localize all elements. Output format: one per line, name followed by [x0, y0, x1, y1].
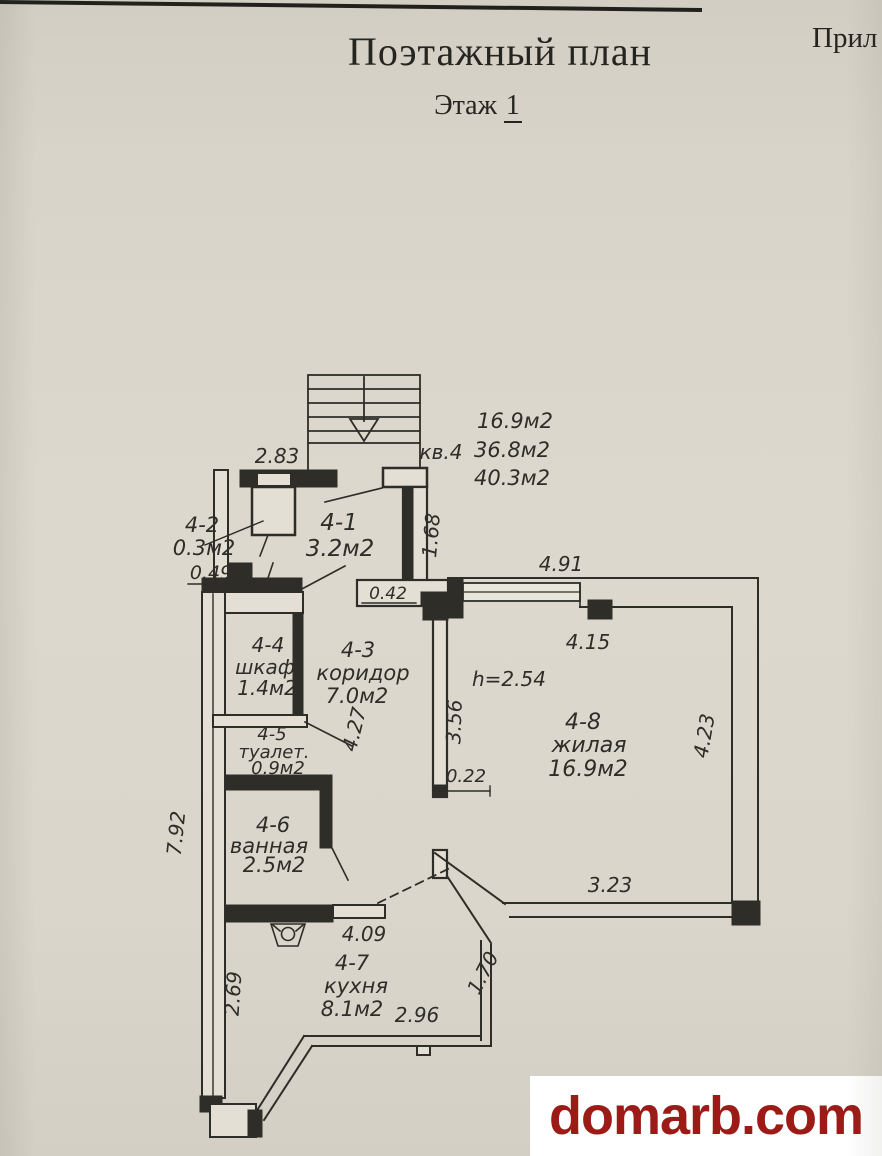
room-4-3-name: коридор [316, 661, 409, 685]
room-4-4-area: 1.4м2 [237, 676, 297, 700]
room-4-5-area: 0.9м2 [251, 758, 305, 779]
room-4-3-area: 7.0м2 [326, 684, 389, 708]
top-edge-line [0, 2, 700, 10]
dim-left-side: 7.92 [162, 810, 191, 857]
room-4-2-id: 4-2 [185, 513, 219, 537]
sink-icon [271, 924, 305, 946]
floor-plan-drawing: 2.83 кв.4 16.9м2 36.8м2 40.3м2 4-1 3.2м2… [0, 0, 882, 1156]
room-4-4-id: 4-4 [252, 633, 285, 657]
dim-corridor-right: 3.56 [441, 699, 467, 744]
entry-door-leaf [325, 488, 382, 502]
room-4-7-name: кухня [324, 974, 388, 998]
built-in-closet [252, 487, 295, 535]
dim-pier: 0.42 [369, 584, 407, 604]
area-summary-total-living: 36.8м2 [474, 438, 550, 462]
dim-kitchen-bottom: 2.96 [395, 1003, 440, 1027]
dim-hall-depth: 1.68 [417, 512, 445, 558]
watermark-text: domarb.com [549, 1085, 863, 1147]
apartment-label: кв.4 [420, 440, 463, 464]
room-4-8-area: 16.9м2 [548, 757, 628, 782]
room-4-7-area: 8.1м2 [321, 997, 384, 1021]
walls-corridor [378, 607, 490, 903]
room-4-8-name: жилая [551, 733, 627, 758]
hall-door-leaf [300, 566, 345, 590]
dim-kitchen-left: 2.69 [219, 970, 246, 1016]
room-4-8-id: 4-8 [565, 710, 601, 735]
walls-bottom-left [200, 1096, 262, 1137]
dim-closet-width: 0.49 [190, 562, 232, 584]
bath-door-leaf [332, 848, 348, 880]
closet-door-leaf [260, 535, 268, 556]
stairs-arrow-icon [350, 419, 378, 441]
dim-living-bottom: 3.23 [588, 873, 633, 897]
room-4-6-area: 2.5м2 [243, 853, 306, 877]
room-4-1-area: 3.2м2 [306, 536, 375, 562]
dim-kitchen-top: 4.09 [342, 922, 387, 946]
dim-living-top: 4.91 [539, 552, 584, 576]
watermark: domarb.com [530, 1076, 882, 1156]
room-4-2-area: 0.3м2 [173, 536, 236, 560]
dim-living-side: 4.23 [688, 712, 719, 760]
dim-living-width: 4.15 [566, 630, 611, 654]
room-4-7-id: 4-7 [335, 951, 370, 975]
dim-door-gap: 0.22 [446, 766, 486, 787]
scanned-floor-plan-page: Поэтажный план Прил Этаж 1 [0, 0, 882, 1156]
area-summary-living: 16.9м2 [477, 409, 553, 433]
vent-shaft [257, 473, 291, 486]
room-4-3-id: 4-3 [341, 638, 375, 662]
staircase [308, 375, 420, 470]
area-summary-total: 40.3м2 [474, 466, 550, 490]
dim-top-width: 2.83 [255, 444, 300, 468]
room-4-1-id: 4-1 [320, 510, 358, 536]
dim-corridor-depth: 4.27 [337, 705, 371, 754]
dim-kitchen-diag: 1.70 [462, 948, 504, 999]
ceiling-height: h=2.54 [472, 667, 546, 691]
